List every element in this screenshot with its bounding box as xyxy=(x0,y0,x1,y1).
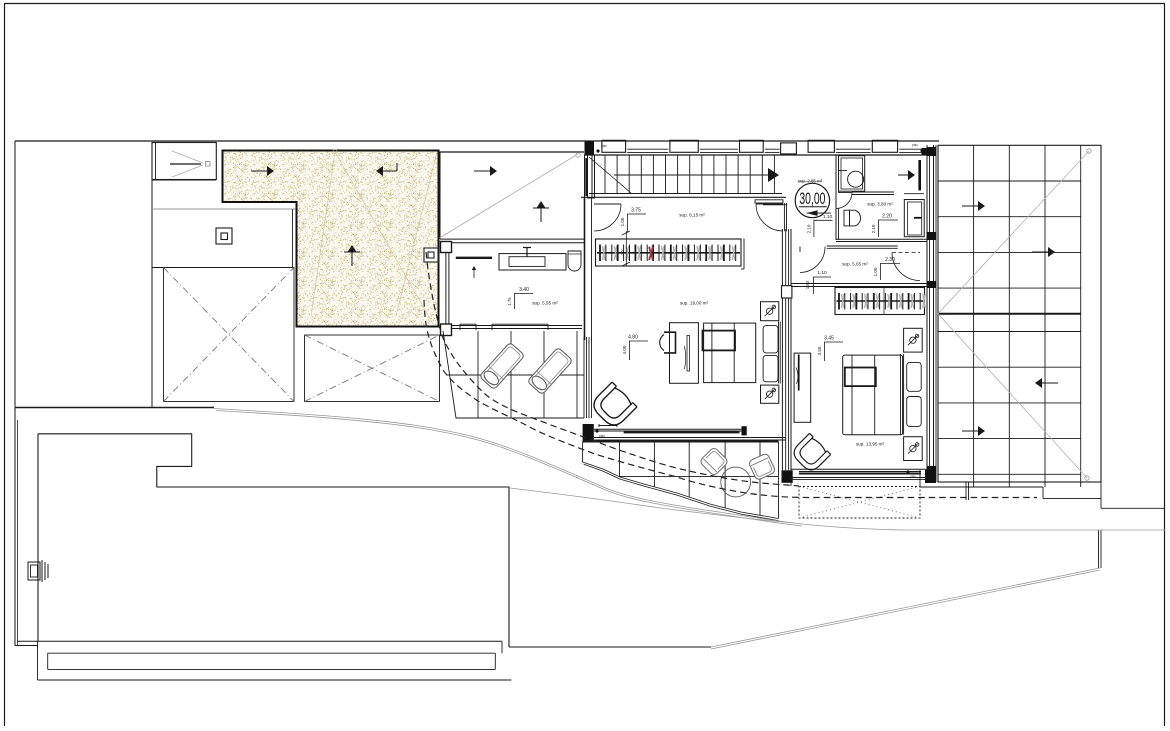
svg-text:2.10: 2.10 xyxy=(871,224,876,233)
svg-text:3.40: 3.40 xyxy=(519,287,529,293)
svg-text:4.80: 4.80 xyxy=(628,335,638,341)
svg-text:plav.: plav. xyxy=(599,434,606,438)
svg-text:4.00: 4.00 xyxy=(622,345,627,354)
svg-text:1.75: 1.75 xyxy=(507,297,512,306)
svg-text:30,00: 30,00 xyxy=(799,189,825,208)
svg-text:2.10: 2.10 xyxy=(807,224,812,233)
svg-text:1.00: 1.00 xyxy=(620,217,625,226)
svg-text:sup. 13,95 m²: sup. 13,95 m² xyxy=(856,442,885,447)
svg-text:3.45: 3.45 xyxy=(824,336,834,342)
svg-text:sup. 19,00 m²: sup. 19,00 m² xyxy=(680,301,709,306)
svg-text:sup. 8,15 m²: sup. 8,15 m² xyxy=(679,213,705,218)
svg-text:3.75: 3.75 xyxy=(631,208,641,214)
svg-text:1.00: 1.00 xyxy=(873,267,878,276)
svg-text:0.60: 0.60 xyxy=(621,249,625,256)
svg-text:sup. 5,95 m²: sup. 5,95 m² xyxy=(532,301,558,306)
svg-text:1.10: 1.10 xyxy=(823,214,833,220)
svg-text:1.80: 1.80 xyxy=(805,280,810,289)
svg-text:plav.: plav. xyxy=(912,143,919,147)
svg-text:sup. 2,85 m²: sup. 2,85 m² xyxy=(798,179,823,184)
svg-text:2.20: 2.20 xyxy=(882,214,892,220)
svg-text:3.50: 3.50 xyxy=(817,346,822,355)
svg-text:sup. 3,80 m²: sup. 3,80 m² xyxy=(867,202,893,207)
svg-text:plav.: plav. xyxy=(910,475,917,479)
svg-text:sup. 5,65 m²: sup. 5,65 m² xyxy=(842,262,868,267)
svg-text:1.10: 1.10 xyxy=(817,270,827,276)
svg-text:plav.: plav. xyxy=(601,144,608,148)
